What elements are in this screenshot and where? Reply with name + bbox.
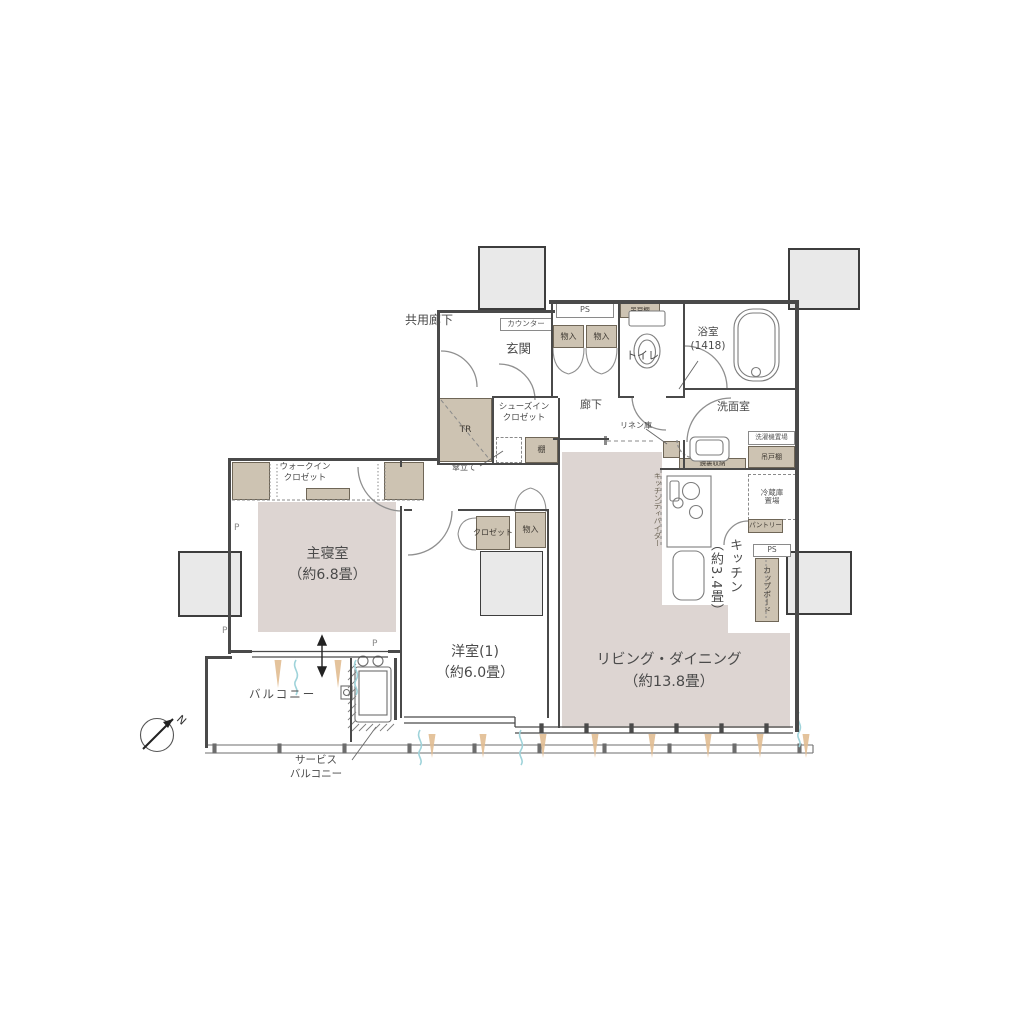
linen-storage-label: リネン庫 [620,420,652,431]
hall-label: 廊下 [580,396,602,412]
hanging-cupboard-label: 吊戸棚 [761,453,782,461]
counter-box: カウンター [500,318,552,331]
balcony-label: バルコニー [249,686,316,702]
closet-box: クロゼット [476,516,510,550]
wall [492,396,558,398]
stove-icon [667,476,711,547]
wall [458,509,549,511]
kitchen-divider-label: キッチンディバイダー [652,472,663,570]
wall [205,656,208,748]
wall [547,509,549,718]
hatching [348,664,394,731]
compass-icon: N [141,713,189,752]
wall [437,310,440,465]
wall [205,656,232,659]
wall [350,658,352,742]
cupboard-box: カップボード [755,558,779,622]
shoes-in-closet-label: シューズインクロゼット [492,402,556,423]
wall [618,302,620,398]
wall [394,658,397,720]
fixtures-layer: N [0,0,1024,1024]
wall [683,440,685,470]
wall [228,458,440,461]
storage-label: 物入 [523,525,539,534]
trunk-room-box: TR [439,398,492,462]
storage-label: 物入 [561,332,577,341]
pillar-mark: P [372,639,377,649]
pillar-mark: P [234,523,239,533]
linen-storage-box [663,441,680,458]
bathtub-icon [734,309,779,381]
western-door-arc [408,511,452,555]
pillar [178,551,242,617]
window-arrow [318,636,326,676]
pillar [480,551,543,616]
wall [404,509,412,511]
umbrella-stand-label: 傘立て [452,462,476,473]
wall [230,650,252,653]
closet-label: クロゼット [473,528,513,537]
balcony-rail [205,744,813,753]
umbrella-stand-box [496,437,522,463]
wall [660,468,797,470]
shelf-label: 棚 [538,445,546,454]
storage-box: 物入 [586,325,617,348]
wall [388,650,402,653]
bathroom-label: 浴室(1418) [680,326,736,353]
floor-plan: カウンター PS 洗濯機置場 PS 冷蔵庫置場 物入 物入 吊戸棚 TR 棚 鏡… [0,0,1024,1024]
entry-door-arc [441,351,477,387]
pipe-space-box: PS [753,544,791,557]
cupboard-label: カップボード [762,566,771,614]
wall [549,300,799,304]
washer-area-label: 洗濯機置場 [755,434,788,441]
fridge-space-box: 冷蔵庫置場 [748,474,796,520]
storage-box: 物入 [553,325,584,348]
sink-icon [673,551,704,600]
wall [553,438,609,440]
wall [618,396,634,398]
counter-label: カウンター [507,320,545,328]
hanging-cupboard-box: 吊戸棚 [620,303,660,318]
wall [228,458,231,654]
living-dining-label: リビング・ダイニング（約13.8畳） [573,650,765,694]
compass-north-label: N [174,713,189,728]
storage-box: 物入 [515,512,546,548]
walk-in-closet-label: ウォークインクロゼット [257,462,353,484]
wall [551,302,553,398]
wall [795,302,799,732]
ps-label: PS [580,306,590,315]
wall [666,396,685,398]
walk-in-closet-box [384,462,424,500]
walk-in-closet-shelf [306,488,350,500]
mirror-storage-label: 鏡裏収納 [700,460,726,467]
master-bedroom-label: 主寝室（約6.8畳） [250,544,405,586]
fridge-space-label: 冷蔵庫置場 [761,489,784,506]
pipe-space-box: PS [556,303,614,318]
hanging-cupboard-label: 吊戸棚 [630,307,650,314]
western-room-label: 洋室(1)（約6.0畳） [420,642,530,684]
wall [400,459,402,467]
washer-icon [341,656,391,722]
hanging-cupboard-box: 吊戸棚 [748,446,795,468]
kitchen-label: キッチン（約3.4畳） [706,538,744,628]
genkan-door-arc [499,364,535,400]
washer-area-box: 洗濯機置場 [748,431,795,445]
common-corridor-label: 共用廊下 [405,311,453,328]
service-balcony-label: サービスバルコニー [272,753,360,781]
ps-label: PS [767,546,776,554]
wall [437,310,555,313]
wall [558,398,560,728]
pantry-box: パントリー [748,519,783,533]
genkan-label: 玄関 [506,338,531,357]
toilet-label: トイレ [626,347,659,363]
storage-label: 物入 [594,332,610,341]
shelf-box: 棚 [525,437,558,463]
wall [400,506,402,718]
pantry-label: パントリー [749,522,782,529]
pillar [478,246,546,310]
pillar-mark: P [222,626,227,636]
washroom-label: 洗面室 [717,398,750,414]
trunk-room-label: TR [460,425,472,435]
wall [683,388,797,390]
